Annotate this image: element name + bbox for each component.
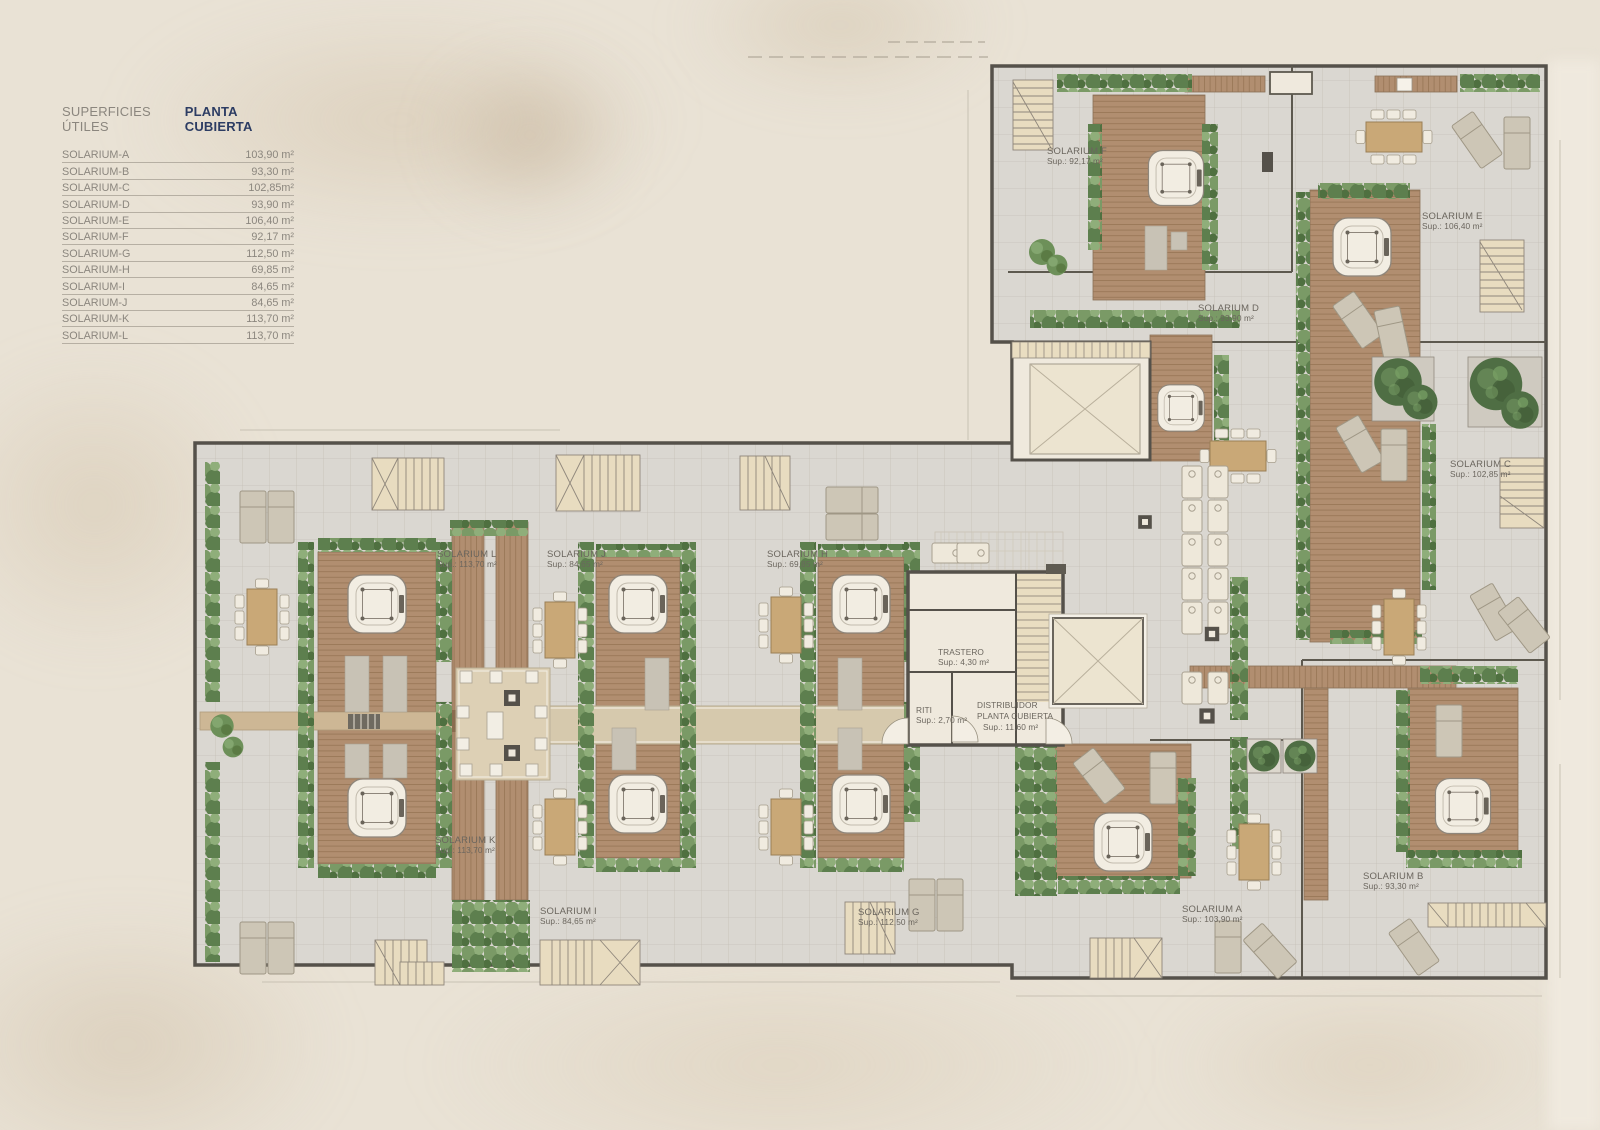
roof-edge-element xyxy=(1185,76,1265,92)
chair-icon xyxy=(490,764,502,776)
lounger-icon xyxy=(1182,500,1202,532)
chair-icon xyxy=(535,706,547,718)
room-label-solarium-d: SOLARIUM D Sup.: 93,90 m² xyxy=(1198,303,1259,323)
lounger-icon xyxy=(1381,429,1407,481)
legend-row: SOLARIUM-L113,70 m² xyxy=(62,327,294,343)
chair-icon xyxy=(526,764,538,776)
legend-row-name: SOLARIUM-I xyxy=(62,281,125,293)
tree-icon xyxy=(1403,385,1438,420)
legend-row-name: SOLARIUM-B xyxy=(62,166,129,178)
room-area: Sup.: 112,50 m² xyxy=(858,917,918,927)
room-area: Sup.: 84,65 m² xyxy=(540,916,596,926)
jacuzzi-icon xyxy=(1158,385,1204,431)
jacuzzi-icon xyxy=(1333,218,1391,276)
plan-title: PLANTA CUBIERTA xyxy=(185,104,294,134)
legend-row-name: SOLARIUM-L xyxy=(62,330,128,342)
chair-icon xyxy=(535,738,547,750)
room-label-solarium-e: SOLARIUM E Sup.: 106,40 m² xyxy=(1422,211,1483,231)
drain-icon xyxy=(1138,515,1152,529)
jacuzzi-icon xyxy=(348,575,406,633)
stairs-icon xyxy=(556,455,640,511)
room-name: TRASTERO xyxy=(938,647,984,657)
room-name-2: PLANTA CUBIERTA xyxy=(977,711,1054,721)
jacuzzi-icon xyxy=(1148,150,1203,205)
room-area: Sup.: 84,65 m² xyxy=(547,559,603,569)
lounger-icon xyxy=(957,543,989,563)
wood-path xyxy=(1304,688,1328,900)
legend-row: SOLARIUM-C102,85m² xyxy=(62,180,294,196)
skylight-2 xyxy=(1049,614,1147,708)
bush-icon xyxy=(1047,255,1068,276)
room-area: Sup.: 93,30 m² xyxy=(1363,881,1419,891)
legend-row-name: SOLARIUM-A xyxy=(62,149,129,161)
jacuzzi-icon xyxy=(1435,778,1490,833)
room-area: Sup.: 113,70 m² xyxy=(437,559,497,569)
room-area: Sup.: 93,90 m² xyxy=(1198,313,1254,323)
wood-path xyxy=(1190,666,1456,688)
legend-row-area: 93,90 m² xyxy=(251,199,294,211)
roof-edge-element xyxy=(1375,76,1457,92)
room-label-solarium-j: SOLARIUM J Sup.: 84,65 m² xyxy=(547,549,606,569)
stairs-icon xyxy=(740,456,790,510)
lounger-icon xyxy=(1208,534,1228,566)
legend-row-area: 84,65 m² xyxy=(251,297,294,309)
legend-row-name: SOLARIUM-C xyxy=(62,182,130,194)
legend-row: SOLARIUM-I84,65 m² xyxy=(62,278,294,294)
legend-row: SOLARIUM-G112,50 m² xyxy=(62,245,294,261)
stairs-icon xyxy=(1428,903,1546,927)
legend-row-name: SOLARIUM-J xyxy=(62,297,127,309)
lounger-icon xyxy=(1215,921,1241,973)
legend-row: SOLARIUM-J84,65 m² xyxy=(62,295,294,311)
legend-row-name: SOLARIUM-D xyxy=(62,199,130,211)
stairs-icon xyxy=(540,940,640,985)
room-label-solarium-b: SOLARIUM B Sup.: 93,30 m² xyxy=(1363,871,1424,891)
stairs-icon xyxy=(1090,938,1162,978)
legend-row-area: 112,50 m² xyxy=(246,248,294,260)
legend-header: SUPERFICIES ÚTILES PLANTA CUBIERTA xyxy=(62,104,294,134)
room-area: Sup.: 106,40 m² xyxy=(1422,221,1483,231)
lounger-icon xyxy=(268,922,294,974)
legend-row: SOLARIUM-K113,70 m² xyxy=(62,311,294,327)
room-area: Sup.: 103,90 m² xyxy=(1182,914,1243,924)
room-name: DISTRIBUIDOR xyxy=(977,700,1038,710)
room-area: Sup.: 11,60 m² xyxy=(983,722,1038,732)
vent-icon xyxy=(1262,152,1273,172)
lounger-icon xyxy=(826,514,878,540)
drain-icon xyxy=(1199,708,1214,723)
lounger-icon xyxy=(1208,568,1228,600)
legend-title: SUPERFICIES ÚTILES xyxy=(62,104,185,134)
legend-row: SOLARIUM-H69,85 m² xyxy=(62,262,294,278)
room-area: Sup.: 4,30 m² xyxy=(938,657,989,667)
bush-icon xyxy=(210,714,233,737)
chair-icon xyxy=(460,764,472,776)
firepit-icon xyxy=(504,690,520,706)
stairs-icon xyxy=(1480,240,1524,312)
room-label-solarium-c: SOLARIUM C Sup.: 102,85 m² xyxy=(1450,459,1511,479)
room-label-solarium-g: SOLARIUM G Sup.: 112,50 m² xyxy=(858,907,920,927)
legend-row: SOLARIUM-A103,90 m² xyxy=(62,147,294,163)
room-area: Sup.: 69,85 m² xyxy=(767,559,823,569)
bush-icon xyxy=(223,737,244,758)
stairs-icon xyxy=(372,458,444,510)
lounger-icon xyxy=(1208,466,1228,498)
legend-row-area: 84,65 m² xyxy=(251,281,294,293)
legend-row-area: 93,30 m² xyxy=(251,166,294,178)
firepit-icon xyxy=(504,745,520,761)
legend-row-name: SOLARIUM-E xyxy=(62,215,129,227)
legend-row-name: SOLARIUM-H xyxy=(62,264,130,276)
lounger-icon xyxy=(1182,672,1202,704)
room-area: Sup.: 113,70 m² xyxy=(435,845,495,855)
legend-row: SOLARIUM-D93,90 m² xyxy=(62,196,294,212)
room-label-solarium-a: SOLARIUM A Sup.: 103,90 m² xyxy=(1182,904,1243,924)
legend-row-area: 102,85m² xyxy=(248,182,294,194)
legend-row-area: 113,70 m² xyxy=(246,330,294,342)
room-label-solarium-f: SOLARIUM F Sup.: 92,17 m² xyxy=(1047,146,1107,166)
room-label-solarium-k: SOLARIUM K Sup.: 113,70 m² xyxy=(435,835,496,855)
legend-row-area: 113,70 m² xyxy=(246,313,294,325)
jacuzzi-icon xyxy=(832,775,890,833)
lounger-icon xyxy=(240,922,266,974)
legend-row: SOLARIUM-B93,30 m² xyxy=(62,163,294,179)
room-name: RITI xyxy=(916,705,932,715)
lounger-icon xyxy=(1436,705,1462,757)
lounger-icon xyxy=(1150,752,1176,804)
lounger-icon xyxy=(1208,672,1228,704)
legend-row-area: 106,40 m² xyxy=(245,215,294,227)
legend-row-name: SOLARIUM-F xyxy=(62,231,129,243)
jacuzzi-icon xyxy=(832,575,890,633)
stair-connector-block xyxy=(1012,342,1150,460)
legend-row-area: 69,85 m² xyxy=(251,264,294,276)
chair-icon xyxy=(490,671,502,683)
floor-plan-page: SOLARIUM F Sup.: 92,17 m² SOLARIUM E Sup… xyxy=(0,0,1600,1130)
lounger-icon xyxy=(1182,534,1202,566)
lounger-icon xyxy=(240,491,266,543)
tree-icon xyxy=(1249,741,1280,772)
room-area: Sup.: 92,17 m² xyxy=(1047,156,1103,166)
lounger-icon xyxy=(1182,602,1202,634)
jacuzzi-icon xyxy=(1094,813,1152,871)
narrow-walkway xyxy=(200,712,458,730)
chair-icon xyxy=(457,738,469,750)
legend-row-area: 92,17 m² xyxy=(251,231,294,243)
tree-icon xyxy=(1285,741,1316,772)
legend-row-area: 103,90 m² xyxy=(245,149,294,161)
lounger-icon xyxy=(1182,466,1202,498)
legend-rows: SOLARIUM-A103,90 m² SOLARIUM-B93,30 m² S… xyxy=(62,147,294,344)
legend-panel: SUPERFICIES ÚTILES PLANTA CUBIERTA SOLAR… xyxy=(62,104,294,344)
legend-row: SOLARIUM-F92,17 m² xyxy=(62,229,294,245)
lounger-icon xyxy=(826,487,878,513)
room-label-solarium-i: SOLARIUM I Sup.: 84,65 m² xyxy=(540,906,597,926)
chair-icon xyxy=(460,671,472,683)
chair-icon xyxy=(526,671,538,683)
tree-icon xyxy=(1501,391,1539,429)
lounger-icon xyxy=(937,879,963,931)
room-label-trastero: TRASTERO Sup.: 4,30 m² xyxy=(938,647,989,667)
jacuzzi-icon xyxy=(609,775,667,833)
chair-icon xyxy=(457,706,469,718)
room-area: Sup.: 2,70 m² xyxy=(916,715,967,725)
communal-table xyxy=(487,712,503,739)
room-label-solarium-l: SOLARIUM L Sup.: 113,70 m² xyxy=(437,549,497,569)
lounger-icon xyxy=(1504,117,1530,169)
room-area: Sup.: 102,85 m² xyxy=(1450,469,1511,479)
jacuzzi-icon xyxy=(348,779,406,837)
legend-row: SOLARIUM-E106,40 m² xyxy=(62,213,294,229)
room-label-solarium-h: SOLARIUM H Sup.: 69,85 m² xyxy=(767,549,828,569)
stairs-icon xyxy=(1013,80,1053,150)
legend-row-name: SOLARIUM-G xyxy=(62,248,130,260)
drain-icon xyxy=(1205,627,1219,641)
legend-row-name: SOLARIUM-K xyxy=(62,313,129,325)
lounger-icon xyxy=(1208,500,1228,532)
jacuzzi-icon xyxy=(609,575,667,633)
lounger-icon xyxy=(268,491,294,543)
lounger-icon xyxy=(1182,568,1202,600)
